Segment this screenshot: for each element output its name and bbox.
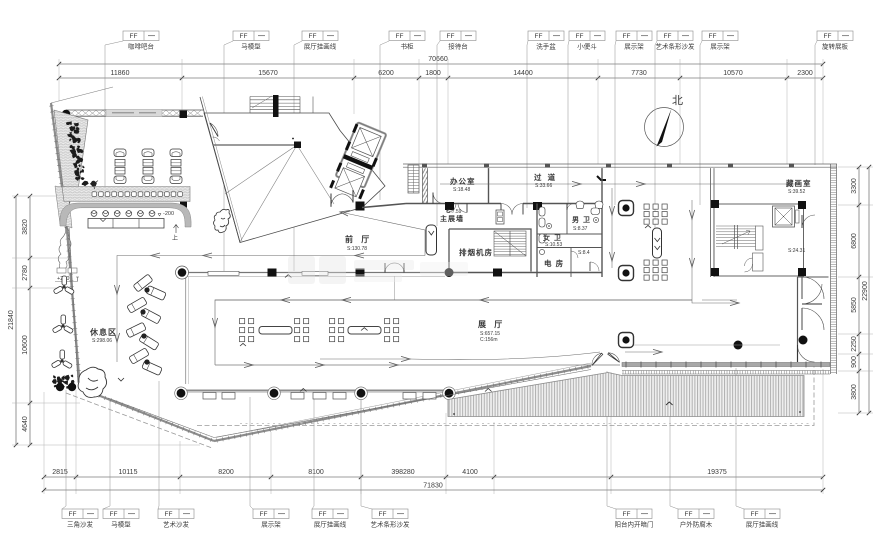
svg-text:S:7.59: S:7.59 [447,209,462,215]
svg-text:3820: 3820 [22,219,29,235]
svg-text:FF: FF [130,33,138,40]
svg-text:北: 北 [672,94,683,107]
svg-text:22900: 22900 [862,281,869,301]
svg-text:户外防腐木: 户外防腐木 [680,520,713,529]
svg-text:展厅挂画线: 展厅挂画线 [314,520,347,529]
svg-text:2780: 2780 [22,265,29,281]
svg-text:FF: FF [664,33,672,40]
svg-text:小便斗: 小便斗 [577,42,597,51]
svg-text:过 道: 过 道 [534,172,557,182]
svg-text:70660: 70660 [428,56,448,63]
svg-text:FF: FF [447,33,455,40]
svg-text:71830: 71830 [423,483,443,490]
svg-text:8100: 8100 [308,469,324,476]
svg-text:398280: 398280 [391,469,414,476]
svg-text:主展墙: 主展墙 [440,214,464,223]
svg-text:FF: FF [396,33,404,40]
svg-text:男 卫: 男 卫 [572,216,591,224]
svg-text:15670: 15670 [258,70,278,77]
svg-text:展厅挂画线: 展厅挂画线 [746,520,779,529]
svg-text:3300: 3300 [851,178,858,194]
svg-text:FF: FF [240,33,248,40]
svg-text:书柜: 书柜 [401,42,415,51]
svg-text:FF: FF [751,511,759,518]
svg-text:展示架: 展示架 [624,43,644,51]
svg-text:S:298.06: S:298.06 [92,338,112,344]
svg-text:4640: 4640 [22,416,29,432]
svg-text:FF: FF [260,511,268,518]
svg-text:2300: 2300 [797,70,813,77]
svg-text:S:130.78: S:130.78 [347,246,367,252]
svg-text:S:8.4: S:8.4 [578,250,590,256]
svg-text:FF: FF [576,33,584,40]
svg-text:咖啡吧台: 咖啡吧台 [128,42,154,51]
svg-text:阳台内开暗门: 阳台内开暗门 [615,520,654,529]
svg-text:7730: 7730 [631,70,647,77]
svg-text:艺术沙发: 艺术沙发 [163,520,190,529]
svg-text:S:33.66: S:33.66 [535,183,552,189]
svg-text:S:8.37: S:8.37 [573,226,588,232]
svg-text:C:156m: C:156m [480,337,498,343]
svg-text:洗手盆: 洗手盆 [536,42,556,51]
svg-text:三角沙发: 三角沙发 [67,520,94,529]
svg-text:FF: FF [69,511,77,518]
svg-text:FF: FF [309,33,317,40]
svg-text:马模型: 马模型 [111,520,131,529]
svg-text:接待台: 接待台 [448,42,468,51]
svg-text:展厅挂画线: 展厅挂画线 [304,42,337,51]
svg-text:2250: 2250 [851,336,858,352]
svg-text:6200: 6200 [378,70,394,77]
svg-text:藏画室: 藏画室 [786,178,812,188]
svg-text:4100: 4100 [462,469,478,476]
svg-text:上: 上 [172,234,178,242]
svg-text:S:10.53: S:10.53 [545,242,562,248]
svg-text:马模型: 马模型 [241,42,261,51]
svg-text:5850: 5850 [851,297,858,313]
svg-text:展示架: 展示架 [710,43,730,51]
svg-text:S:39.52: S:39.52 [788,189,805,195]
svg-text:FF: FF [623,33,631,40]
svg-text:8200: 8200 [218,469,234,476]
svg-text:11860: 11860 [111,70,130,77]
svg-text:艺术条形沙发: 艺术条形沙发 [656,42,696,51]
svg-text:FF: FF [623,511,631,518]
svg-text:3800: 3800 [851,384,858,400]
svg-text:S:18.48: S:18.48 [453,187,470,193]
svg-text:6800: 6800 [851,233,858,249]
svg-text:展示架: 展示架 [261,521,281,529]
svg-text:FF: FF [379,511,387,518]
svg-text:1800: 1800 [425,70,441,77]
svg-text:FF: FF [165,511,173,518]
svg-text:900: 900 [851,356,858,368]
svg-text:2815: 2815 [52,469,68,476]
svg-text:排烟机房: 排烟机房 [459,247,493,257]
svg-text:FF: FF [709,33,717,40]
svg-text:办公室: 办公室 [450,176,476,186]
svg-text:S:24.31: S:24.31 [788,248,805,254]
svg-text:14400: 14400 [513,70,533,77]
svg-text:FF: FF [110,511,118,518]
svg-text:21840: 21840 [8,310,15,330]
svg-text:休息区: 休息区 [89,327,117,337]
svg-text:10570: 10570 [723,70,743,77]
svg-text:10115: 10115 [119,469,138,476]
svg-text:10600: 10600 [22,335,29,355]
svg-text:FF: FF [535,33,543,40]
svg-text:FF: FF [319,511,327,518]
svg-text:女 卫: 女 卫 [543,233,562,242]
svg-text:19375: 19375 [707,469,727,476]
svg-text:展 厅: 展 厅 [477,320,505,329]
svg-text:艺术条形沙发: 艺术条形沙发 [371,520,411,529]
svg-text:电 房: 电 房 [544,258,564,268]
svg-text:旋转展板: 旋转展板 [822,42,849,51]
svg-text:FF: FF [685,511,693,518]
svg-text:-200: -200 [163,211,174,217]
svg-text:前 厅: 前 厅 [345,234,372,244]
svg-text:FF: FF [824,33,832,40]
